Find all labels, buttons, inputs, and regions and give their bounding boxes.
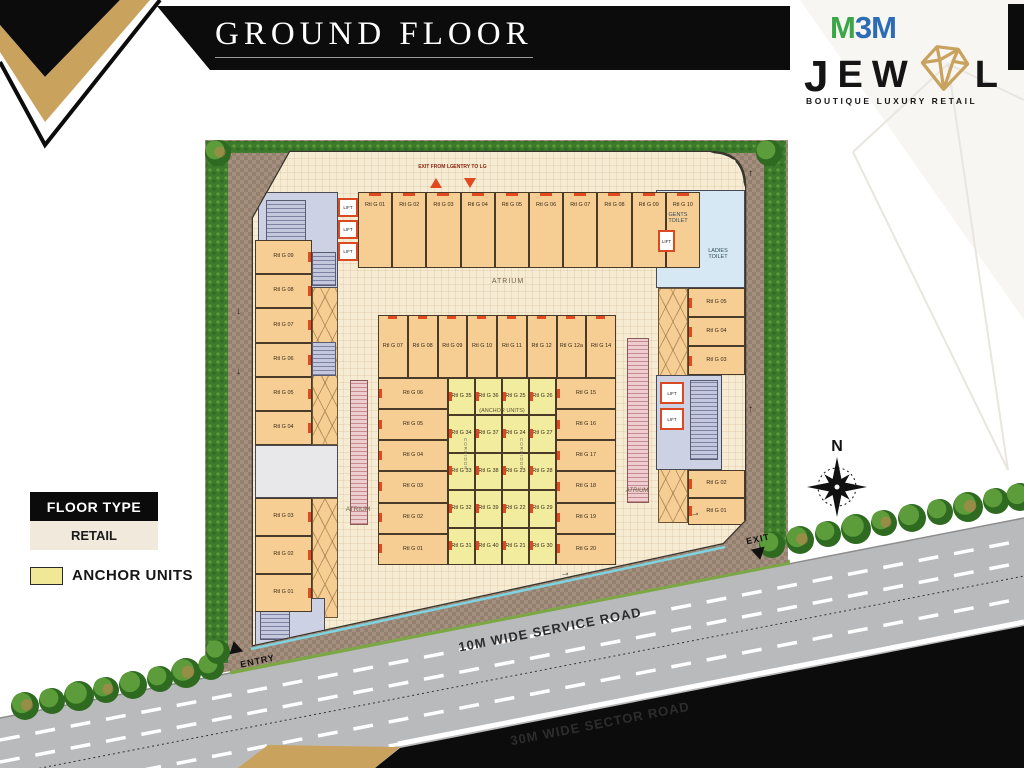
m3m-wordmark: M3M bbox=[830, 10, 896, 46]
atrium-label: ATRIUM bbox=[614, 488, 660, 495]
unit-rtl-g-01: Rtl G 01 bbox=[358, 192, 392, 268]
service-core bbox=[255, 445, 338, 498]
unit-rtl-g-06: Rtl G 06 bbox=[378, 378, 448, 409]
unit-rtl-g-11: Rtl G 11 bbox=[497, 315, 527, 378]
escalator bbox=[627, 338, 649, 503]
unit-rtl-g-12: Rtl G 12 bbox=[527, 315, 557, 378]
unit-rtl-g-30: Rtl G 30 bbox=[529, 528, 556, 565]
unit-rtl-g-03: Rtl G 03 bbox=[426, 192, 460, 268]
unit-rtl-g-06: Rtl G 06 bbox=[529, 192, 563, 268]
unit-rtl-g-12a: Rtl G 12a bbox=[557, 315, 587, 378]
zone-top-row: Rtl G 01Rtl G 02Rtl G 03Rtl G 04Rtl G 05… bbox=[358, 192, 700, 268]
unit-rtl-g-05: Rtl G 05 bbox=[255, 377, 312, 411]
corner-block bbox=[1008, 4, 1024, 70]
unit-rtl-g-16: Rtl G 16 bbox=[556, 409, 616, 440]
unit-rtl-g-18: Rtl G 18 bbox=[556, 471, 616, 502]
exit-from-lg-label: EXIT FROM LG bbox=[418, 165, 454, 171]
lift: LIFT bbox=[658, 230, 675, 252]
unit-rtl-g-04: Rtl G 04 bbox=[255, 411, 312, 445]
jewel-wordmark: J E W L bbox=[804, 42, 1007, 92]
unit-rtl-g-31: Rtl G 31 bbox=[448, 528, 475, 565]
unit-rtl-g-01: Rtl G 01 bbox=[255, 574, 312, 612]
unit-rtl-g-37: Rtl G 37 bbox=[475, 415, 502, 452]
ladies-toilet-label: LADIES TOILET bbox=[702, 248, 734, 261]
zone-anchor-units: Rtl G 35Rtl G 36Rtl G 25Rtl G 26Rtl G 34… bbox=[448, 378, 556, 565]
unit-rtl-g-23: Rtl G 23 bbox=[502, 453, 529, 490]
lift: LIFT bbox=[338, 198, 358, 217]
unit-rtl-g-14: Rtl G 14 bbox=[586, 315, 616, 378]
unit-rtl-g-27: Rtl G 27 bbox=[529, 415, 556, 452]
unit-rtl-g-32: Rtl G 32 bbox=[448, 490, 475, 527]
corridor-label: CORRIDOR bbox=[463, 438, 468, 471]
entry-to-lg-arrow-icon bbox=[464, 178, 476, 188]
unit-rtl-g-34: Rtl G 34 bbox=[448, 415, 475, 452]
unit-rtl-g-29: Rtl G 29 bbox=[529, 490, 556, 527]
zone-second-row: Rtl G 07Rtl G 08Rtl G 09Rtl G 10Rtl G 11… bbox=[378, 315, 616, 378]
unit-rtl-g-03: Rtl G 03 bbox=[688, 346, 745, 375]
unit-rtl-g-08: Rtl G 08 bbox=[597, 192, 631, 268]
direction-arrow: → bbox=[559, 567, 571, 580]
compass-icon: N bbox=[807, 438, 867, 517]
brand-tagline: BOUTIQUE LUXURY RETAIL bbox=[806, 96, 977, 106]
floor-type-header: FLOOR TYPE bbox=[30, 492, 158, 521]
direction-arrow: ↓ bbox=[236, 306, 241, 317]
unit-rtl-g-02: Rtl G 02 bbox=[688, 470, 745, 498]
unit-rtl-g-03: Rtl G 03 bbox=[255, 498, 312, 536]
unit-rtl-g-17: Rtl G 17 bbox=[556, 440, 616, 471]
unit-rtl-g-05: Rtl G 05 bbox=[688, 288, 745, 317]
gents-toilet-label: GENTS TOILET bbox=[662, 212, 694, 225]
title-bar: GROUND FLOOR bbox=[157, 6, 790, 70]
unit-rtl-g-21: Rtl G 21 bbox=[502, 528, 529, 565]
unit-rtl-g-39: Rtl G 39 bbox=[475, 490, 502, 527]
unit-rtl-g-28: Rtl G 28 bbox=[529, 453, 556, 490]
entry-to-lg-label: ENTRY TO LG bbox=[452, 165, 488, 171]
unit-rtl-g-04: Rtl G 04 bbox=[378, 440, 448, 471]
unit-rtl-g-08: Rtl G 08 bbox=[255, 274, 312, 308]
unit-rtl-g-08: Rtl G 08 bbox=[408, 315, 438, 378]
unit-rtl-g-15: Rtl G 15 bbox=[556, 378, 616, 409]
unit-rtl-g-40: Rtl G 40 bbox=[475, 528, 502, 565]
page-title: GROUND FLOOR bbox=[215, 16, 533, 58]
zone-inner-right-column: Rtl G 15Rtl G 16Rtl G 17Rtl G 18Rtl G 19… bbox=[556, 378, 616, 565]
zone-left-bottom-column: Rtl G 03Rtl G 02Rtl G 01 bbox=[255, 498, 312, 612]
unit-rtl-g-04: Rtl G 04 bbox=[688, 317, 745, 346]
unit-rtl-g-04: Rtl G 04 bbox=[461, 192, 495, 268]
zone-left-column: Rtl G 09Rtl G 08Rtl G 07Rtl G 06Rtl G 05… bbox=[255, 240, 312, 445]
gold-diamond-icon bbox=[917, 42, 973, 94]
floor-type-value: RETAIL bbox=[30, 521, 158, 550]
unit-rtl-g-33: Rtl G 33 bbox=[448, 453, 475, 490]
staircase bbox=[312, 252, 336, 286]
unit-rtl-g-01: Rtl G 01 bbox=[378, 534, 448, 565]
svg-text:N: N bbox=[831, 438, 843, 455]
atrium-label: ATRIUM bbox=[330, 506, 386, 513]
atrium-label: ATRIUM bbox=[468, 278, 548, 286]
unit-rtl-g-05: Rtl G 05 bbox=[378, 409, 448, 440]
unit-rtl-g-19: Rtl G 19 bbox=[556, 503, 616, 534]
anchor-units-swatch bbox=[30, 567, 63, 585]
unit-rtl-g-09: Rtl G 09 bbox=[255, 240, 312, 274]
unit-rtl-g-09: Rtl G 09 bbox=[438, 315, 468, 378]
corridor-label: CORRIDOR bbox=[519, 438, 524, 471]
staircase bbox=[312, 342, 336, 376]
unit-rtl-g-03: Rtl G 03 bbox=[378, 471, 448, 502]
unit-rtl-g-02: Rtl G 02 bbox=[378, 503, 448, 534]
unit-rtl-g-22: Rtl G 22 bbox=[502, 490, 529, 527]
escalator bbox=[350, 380, 368, 525]
unit-rtl-g-06: Rtl G 06 bbox=[255, 343, 312, 377]
unit-rtl-g-24: Rtl G 24 bbox=[502, 415, 529, 452]
direction-arrow: ↑ bbox=[748, 404, 753, 415]
unit-rtl-g-07: Rtl G 07 bbox=[255, 308, 312, 342]
lift: LIFT bbox=[660, 382, 684, 404]
exit-from-lg-arrow-icon bbox=[430, 178, 442, 188]
unit-rtl-g-02: Rtl G 02 bbox=[392, 192, 426, 268]
unit-rtl-g-02: Rtl G 02 bbox=[255, 536, 312, 574]
lift: LIFT bbox=[338, 220, 358, 239]
lift: LIFT bbox=[338, 242, 358, 261]
anchor-units-caption: (ANCHOR UNITS) bbox=[456, 408, 548, 414]
zone-right-column-top: Rtl G 05Rtl G 04Rtl G 03 bbox=[688, 288, 745, 375]
unit-rtl-g-07: Rtl G 07 bbox=[563, 192, 597, 268]
unit-rtl-g-10: Rtl G 10 bbox=[467, 315, 497, 378]
lift: LIFT bbox=[660, 408, 684, 430]
anchor-units-label: ANCHOR UNITS bbox=[72, 567, 193, 584]
unit-rtl-g-05: Rtl G 05 bbox=[495, 192, 529, 268]
zone-inner-left-column: Rtl G 06Rtl G 05Rtl G 04Rtl G 03Rtl G 02… bbox=[378, 378, 448, 565]
unit-rtl-g-07: Rtl G 07 bbox=[378, 315, 408, 378]
unit-rtl-g-38: Rtl G 38 bbox=[475, 453, 502, 490]
unit-rtl-g-20: Rtl G 20 bbox=[556, 534, 616, 565]
corner-chevron bbox=[0, 0, 160, 145]
staircase bbox=[690, 380, 718, 460]
direction-arrow: ↓ bbox=[236, 366, 241, 377]
direction-arrow: → bbox=[689, 507, 701, 520]
brand-logo: M3M J E W L BOUTIQUE LUXURY RETAIL bbox=[800, 8, 1010, 108]
direction-arrow: ↑ bbox=[748, 168, 753, 179]
